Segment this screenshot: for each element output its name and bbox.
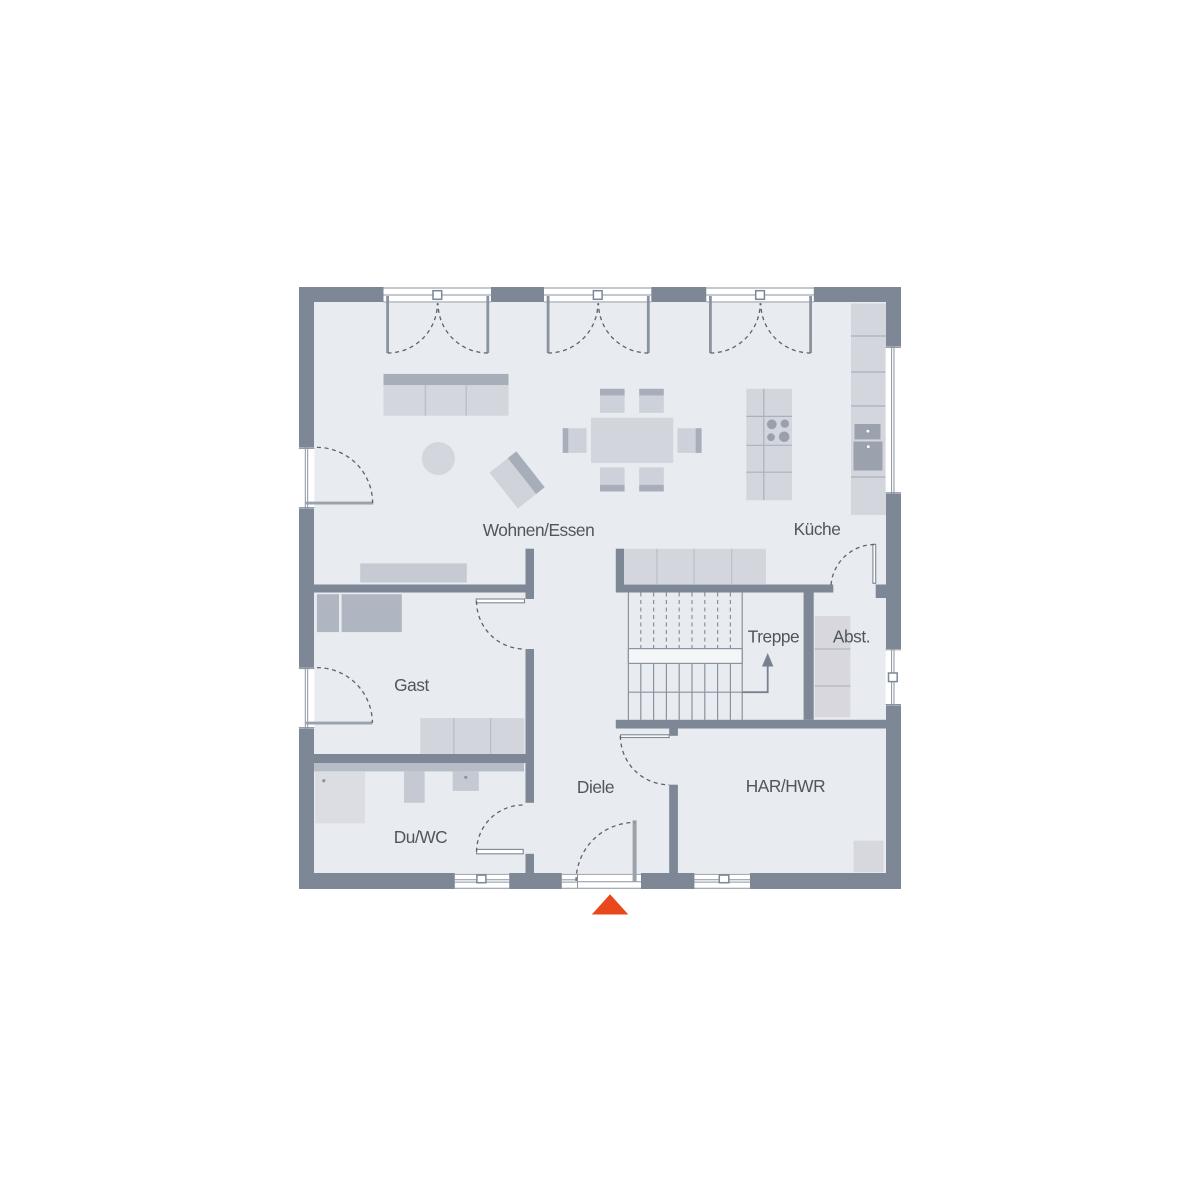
svg-text:Du/WC: Du/WC	[394, 827, 447, 847]
svg-text:Treppe: Treppe	[748, 627, 799, 647]
svg-text:Küche: Küche	[794, 519, 841, 539]
svg-text:Abst.: Abst.	[833, 627, 870, 647]
svg-text:Wohnen/Essen: Wohnen/Essen	[483, 520, 595, 540]
svg-text:HAR/HWR: HAR/HWR	[746, 776, 825, 796]
svg-text:Gast: Gast	[394, 675, 429, 695]
svg-text:Diele: Diele	[577, 777, 614, 797]
